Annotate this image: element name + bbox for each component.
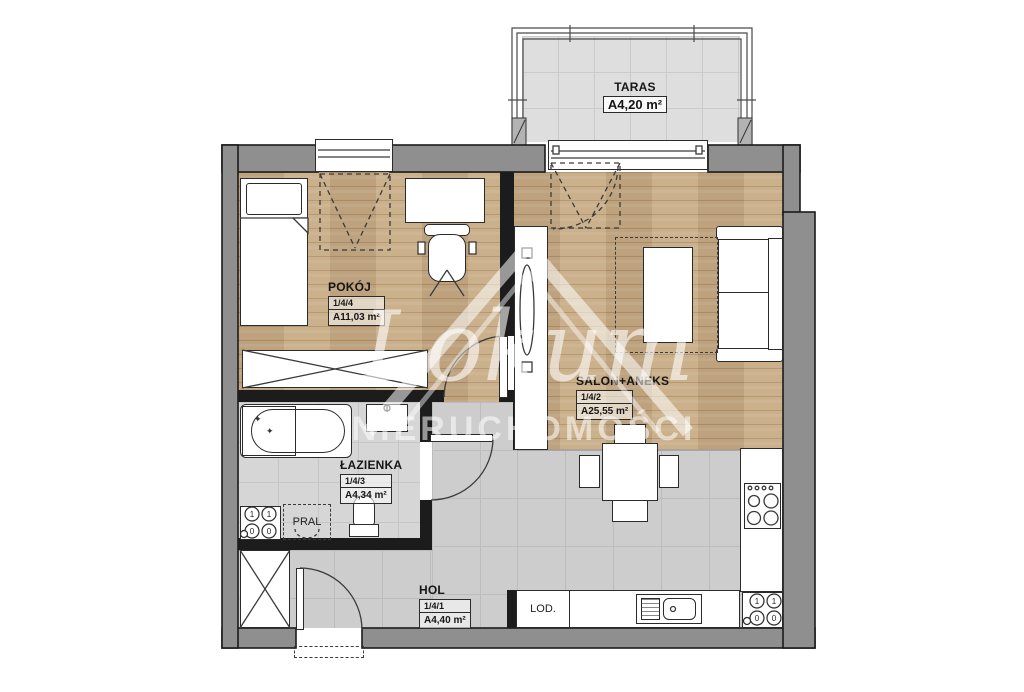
- meter-box-kitchen: [742, 592, 783, 628]
- room-unit: 1/4/2: [577, 391, 632, 404]
- cooktop: [744, 483, 781, 529]
- toilet-tank: [349, 524, 379, 537]
- sink-drainer: [641, 598, 660, 620]
- tv-cabinet: [514, 226, 548, 450]
- jet-icon: ✦: [254, 414, 262, 425]
- room-name: ŁAZIENKA: [340, 458, 402, 472]
- room-label-taras: TARAS A4,20 m²: [575, 80, 695, 114]
- room-unit: 1/4/3: [341, 475, 391, 488]
- wardrobe-hall: [240, 550, 290, 628]
- bed-pillow: [246, 183, 302, 215]
- dining-chair: [579, 455, 600, 488]
- room-name: HOL: [419, 583, 471, 597]
- bedroom-window: [315, 139, 393, 172]
- room-area: A4,34 m²: [341, 488, 391, 503]
- washer-label: PRAL: [293, 516, 322, 528]
- entrance-threshold: [294, 646, 364, 658]
- desk-chair-seat: [428, 234, 466, 282]
- terrace-wall-end-right: [738, 118, 752, 145]
- room-name: TARAS: [575, 80, 695, 94]
- room-area: A4,20 m²: [604, 97, 666, 112]
- balcony-door: [548, 140, 708, 170]
- room-area: A25,55 m²: [577, 404, 632, 419]
- floor-plan: LOD. ✦ ✦ PRAL TARAS A4,20 m² POKÓJ 1/4/4…: [0, 0, 1024, 692]
- sink-bowl: [663, 598, 696, 620]
- bathroom-sink: [366, 404, 408, 432]
- room-area: A11,03 m²: [329, 310, 384, 325]
- meter-box-bathroom: [240, 506, 281, 540]
- sofa-cushion: [718, 292, 769, 349]
- bathroom-door-leaf: [430, 434, 493, 442]
- dining-chair: [612, 500, 648, 522]
- coffee-table: [643, 247, 693, 343]
- dining-table: [602, 443, 658, 501]
- dining-chair: [659, 455, 679, 488]
- room-unit: 1/4/1: [420, 600, 470, 613]
- sofa-cushion: [718, 239, 769, 293]
- sofa-backrest: [768, 238, 783, 350]
- fridge: LOD.: [516, 590, 570, 628]
- room-area: A4,40 m²: [420, 613, 470, 628]
- room-label-hol: HOL 1/4/1 A4,40 m²: [419, 583, 471, 629]
- dining-chair: [614, 424, 646, 444]
- room-label-salon: SALON+ANEKS 1/4/2 A25,55 m²: [576, 374, 669, 420]
- room-name: SALON+ANEKS: [576, 374, 669, 388]
- entrance-door-leaf: [296, 568, 304, 630]
- fridge-label: LOD.: [530, 603, 556, 615]
- room-label-pokoj: POKÓJ 1/4/4 A11,03 m²: [328, 280, 385, 326]
- room-name: POKÓJ: [328, 280, 385, 294]
- washing-machine: PRAL: [283, 504, 331, 540]
- room-unit: 1/4/4: [329, 297, 384, 310]
- room-label-lazienka: ŁAZIENKA 1/4/3 A4,34 m²: [340, 458, 402, 504]
- jet-icon: ✦: [266, 426, 274, 437]
- bedroom-door-leaf: [499, 336, 508, 398]
- wardrobe-bedroom: [242, 350, 428, 388]
- sofa-armrest-bottom: [716, 348, 783, 362]
- desk: [405, 178, 485, 223]
